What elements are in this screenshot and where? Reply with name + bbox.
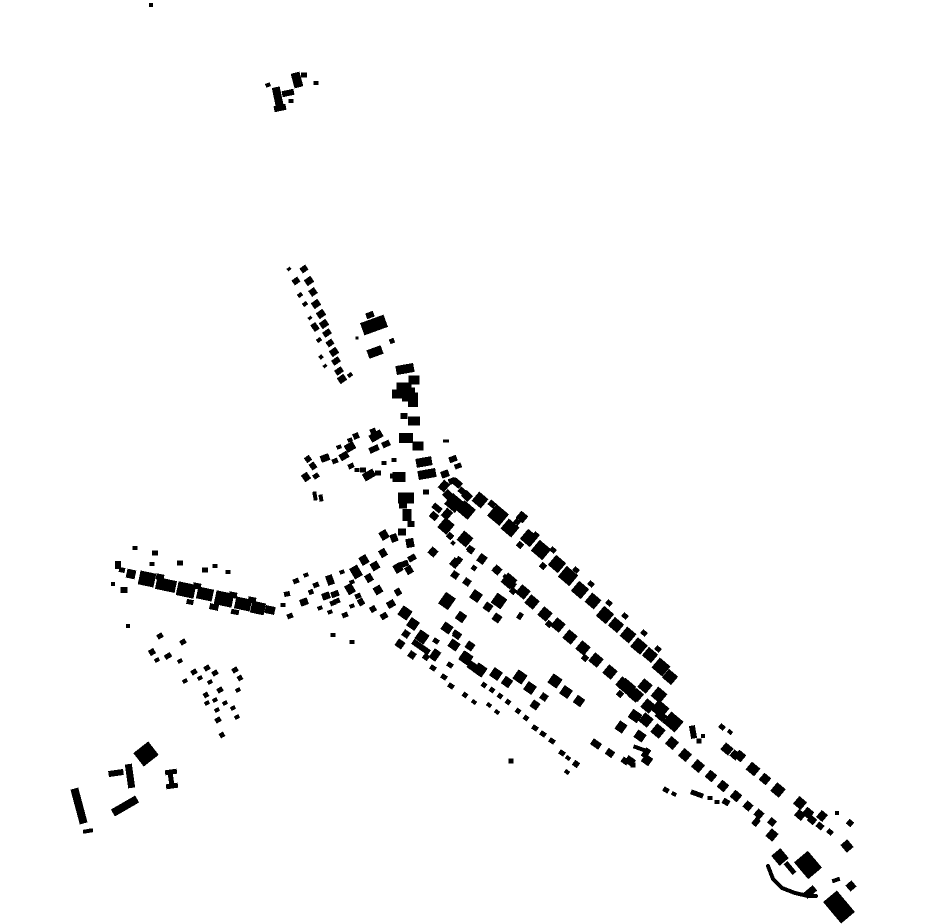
building-footprint	[264, 605, 275, 615]
building-footprint	[678, 748, 692, 762]
building-footprint	[718, 723, 726, 731]
building-footprint	[320, 453, 331, 463]
building-footprint	[621, 612, 629, 620]
building-footprint	[691, 759, 705, 773]
building-footprint	[164, 652, 173, 660]
building-footprint	[450, 540, 456, 546]
building-footprint	[297, 292, 303, 298]
building-footprint	[650, 723, 665, 738]
building-footprint	[547, 673, 562, 688]
building-footprint	[386, 599, 396, 609]
building-footprint	[327, 609, 333, 614]
building-footprint	[614, 720, 627, 733]
building-footprint	[515, 708, 522, 715]
building-footprint	[516, 541, 524, 549]
building-footprint	[721, 798, 730, 807]
building-footprint	[302, 301, 308, 307]
building-footprint	[321, 591, 331, 600]
building-footprint	[156, 632, 164, 639]
building-footprint	[322, 328, 332, 338]
building-footprint	[531, 540, 551, 560]
building-footprint	[349, 603, 355, 608]
building-footprint	[149, 3, 153, 7]
building-footprint	[111, 582, 115, 586]
building-footprint	[491, 612, 502, 623]
building-footprint	[312, 582, 319, 589]
building-footprint	[486, 702, 492, 708]
building-footprint	[230, 705, 236, 711]
building-footprint	[212, 697, 218, 703]
building-footprint	[489, 687, 496, 694]
building-footprint	[462, 692, 469, 699]
building-footprint	[690, 789, 704, 798]
building-footprint	[336, 444, 342, 449]
building-footprint	[671, 791, 677, 797]
building-footprint	[349, 565, 363, 580]
building-footprint	[549, 546, 557, 554]
building-footprint	[308, 287, 318, 297]
cluster-southeast-tail	[771, 839, 856, 923]
building-footprint	[793, 796, 807, 810]
building-footprint	[665, 736, 679, 750]
building-footprint	[177, 561, 183, 566]
building-footprint	[548, 737, 556, 745]
building-footprint	[588, 652, 603, 667]
building-footprint	[717, 780, 730, 793]
building-footprint	[138, 570, 157, 587]
building-footprint	[126, 569, 137, 580]
building-footprint	[368, 444, 380, 454]
building-footprint	[301, 472, 311, 483]
building-footprint	[392, 390, 408, 399]
building-footprint	[176, 581, 197, 598]
building-footprint	[472, 492, 489, 509]
building-footprint	[505, 699, 512, 706]
building-footprint	[432, 637, 440, 645]
building-footprint	[448, 455, 458, 463]
building-footprint	[211, 669, 219, 676]
building-footprint	[235, 687, 241, 693]
building-footprint	[429, 664, 437, 672]
building-footprint	[378, 548, 388, 558]
building-footprint	[585, 593, 602, 610]
building-footprint	[319, 319, 330, 329]
building-footprint	[404, 512, 411, 518]
building-footprint	[539, 562, 547, 570]
building-footprint	[417, 468, 436, 480]
building-footprint	[516, 612, 524, 621]
building-footprint	[390, 474, 396, 479]
building-footprint	[231, 666, 239, 673]
building-footprint	[572, 760, 580, 768]
building-footprint	[398, 529, 406, 536]
building-footprint	[265, 82, 271, 87]
building-footprint	[413, 442, 424, 451]
building-footprint	[186, 599, 194, 605]
building-map	[0, 0, 930, 924]
building-footprint	[234, 714, 240, 720]
building-footprint	[437, 517, 455, 535]
building-footprint	[701, 734, 705, 738]
building-footprint	[203, 664, 211, 671]
building-footprint	[166, 783, 179, 790]
building-footprint	[784, 861, 797, 875]
building-footprint	[366, 345, 383, 359]
building-footprint	[154, 657, 160, 663]
building-footprint	[539, 692, 549, 702]
building-footprint	[450, 570, 460, 580]
building-footprint	[443, 440, 449, 443]
building-footprint	[318, 494, 323, 502]
building-footprint	[308, 589, 314, 595]
building-footprint	[440, 621, 453, 634]
building-footprint	[133, 546, 138, 550]
building-footprint	[204, 700, 210, 706]
building-footprint	[316, 309, 327, 319]
building-footprint	[497, 693, 504, 700]
building-footprint	[823, 890, 855, 923]
building-footprint	[309, 461, 318, 470]
building-footprint	[304, 455, 312, 463]
building-footprint	[325, 574, 335, 586]
building-footprint	[476, 553, 488, 565]
building-footprint	[708, 796, 713, 800]
building-footprint	[705, 770, 718, 783]
building-footprint	[753, 808, 764, 819]
building-footprint	[452, 630, 463, 640]
building-footprint	[108, 769, 124, 777]
building-footprint	[427, 546, 438, 557]
cluster-farmstead	[70, 741, 178, 833]
building-footprint	[347, 372, 353, 378]
building-footprint	[356, 337, 359, 340]
building-footprint	[746, 762, 761, 777]
building-footprint	[832, 877, 841, 883]
building-footprint	[281, 603, 286, 607]
building-footprint	[312, 472, 320, 480]
building-footprint	[179, 638, 187, 645]
building-footprint	[581, 654, 589, 662]
building-footprint	[509, 759, 514, 764]
building-footprint	[382, 461, 387, 465]
building-footprint	[608, 617, 624, 633]
building-footprint	[524, 594, 539, 609]
building-footprint	[214, 707, 220, 713]
building-footprint	[401, 629, 411, 639]
building-footprint	[405, 538, 414, 548]
building-footprint	[299, 265, 308, 274]
building-footprint	[590, 738, 602, 749]
building-footprint	[214, 716, 222, 723]
building-footprint	[370, 561, 381, 572]
building-footprint	[408, 399, 418, 407]
building-footprint	[494, 709, 500, 715]
building-footprint	[559, 685, 573, 699]
building-footprint	[826, 828, 834, 836]
building-footprint	[408, 521, 415, 527]
building-footprint	[369, 605, 377, 613]
building-footprint	[292, 578, 299, 585]
building-footprint	[558, 749, 566, 757]
building-footprint	[308, 316, 313, 321]
building-footprint	[633, 729, 646, 742]
building-footprint	[197, 675, 203, 681]
building-footprint	[816, 810, 828, 822]
building-footprint	[301, 73, 307, 78]
building-footprint	[455, 611, 468, 624]
building-footprint	[840, 839, 853, 852]
building-footprint	[815, 821, 824, 830]
building-footprint	[447, 682, 455, 690]
building-footprint	[375, 471, 381, 476]
building-footprint	[447, 638, 460, 651]
cluster-main-street-lower-row	[437, 517, 778, 842]
building-footprint	[365, 311, 375, 319]
building-footprint	[358, 554, 369, 566]
building-footprint	[355, 468, 360, 472]
building-footprint	[125, 764, 135, 789]
building-footprint	[121, 587, 128, 593]
cluster-main-street-upper-row	[427, 477, 854, 836]
building-footprint	[539, 730, 547, 738]
cluster-center-column	[389, 388, 436, 569]
building-footprint	[605, 599, 613, 607]
building-footprint	[304, 276, 315, 286]
building-footprint	[282, 89, 295, 97]
building-footprint	[565, 755, 571, 761]
building-footprint	[438, 592, 456, 610]
building-footprint	[794, 851, 822, 879]
building-footprint	[765, 828, 778, 841]
building-footprint	[454, 462, 462, 469]
building-footprint	[631, 763, 636, 768]
building-footprint	[312, 491, 318, 501]
building-footprint	[325, 339, 334, 348]
building-footprint	[331, 633, 336, 637]
building-footprint	[689, 725, 697, 739]
building-footprint	[299, 597, 309, 606]
building-footprint	[331, 458, 338, 465]
building-footprint	[216, 686, 224, 693]
building-footprint	[373, 585, 384, 596]
building-footprint	[571, 581, 589, 599]
building-footprint	[471, 565, 478, 572]
building-footprint	[331, 356, 341, 366]
building-footprint	[318, 354, 324, 360]
building-footprint	[564, 769, 570, 775]
building-footprint	[379, 612, 388, 621]
building-footprint	[381, 440, 391, 449]
building-footprint	[620, 627, 637, 644]
building-footprint	[846, 819, 854, 827]
building-footprint	[408, 417, 420, 426]
building-footprint	[203, 692, 210, 699]
building-footprint	[395, 363, 414, 375]
building-footprint	[491, 593, 508, 610]
building-footprint	[550, 617, 565, 632]
building-footprint	[364, 573, 374, 583]
building-footprint	[633, 744, 649, 753]
building-footprint	[339, 569, 345, 574]
building-footprint	[222, 700, 228, 706]
building-footprint	[399, 433, 413, 443]
building-footprint	[537, 606, 552, 621]
building-footprint	[407, 553, 417, 562]
building-footprint	[727, 729, 733, 735]
building-footprint	[462, 577, 472, 587]
building-footprint	[529, 699, 540, 710]
building-footprint	[360, 315, 388, 336]
building-footprint	[389, 338, 395, 344]
building-footprint	[152, 551, 158, 556]
building-footprint	[126, 624, 130, 628]
cluster-northwest-road	[287, 265, 354, 385]
building-footprint	[575, 640, 590, 655]
building-footprint	[587, 580, 595, 588]
cluster-center-west	[301, 428, 473, 502]
building-footprint	[344, 583, 356, 596]
building-footprint	[715, 800, 720, 804]
map-canvas	[0, 0, 930, 924]
building-footprint	[70, 788, 87, 825]
building-footprint	[767, 817, 777, 827]
building-footprint	[111, 796, 139, 817]
building-footprint	[654, 645, 662, 653]
building-footprint	[605, 748, 616, 758]
building-footprint	[341, 612, 348, 619]
building-footprint	[523, 681, 537, 695]
building-footprint	[378, 529, 389, 541]
building-footprint	[392, 458, 397, 462]
building-footprint	[845, 880, 856, 891]
building-footprint	[284, 591, 291, 597]
building-footprint	[213, 564, 218, 568]
building-footprint	[352, 432, 360, 440]
building-footprint	[133, 741, 158, 766]
building-footprint	[697, 739, 702, 744]
building-footprint	[287, 267, 292, 272]
building-footprint	[394, 587, 403, 596]
building-footprint	[330, 590, 340, 598]
building-footprint	[389, 533, 398, 543]
cluster-west-dots	[111, 546, 362, 628]
cluster-southwest-rows	[148, 632, 244, 738]
building-footprint	[202, 568, 208, 573]
building-footprint	[316, 337, 322, 343]
building-footprint	[602, 664, 617, 679]
building-footprint	[523, 715, 530, 722]
building-footprint	[457, 531, 474, 548]
building-footprint	[512, 669, 527, 684]
building-footprint	[148, 648, 156, 656]
building-footprint	[182, 678, 188, 684]
building-footprint	[501, 676, 514, 689]
building-footprint	[742, 800, 753, 811]
building-footprint	[334, 366, 344, 376]
building-footprint	[226, 570, 231, 574]
building-footprint	[770, 782, 785, 797]
building-footprint	[759, 773, 772, 786]
building-footprint	[446, 661, 454, 669]
building-footprint	[464, 640, 475, 651]
building-footprint	[115, 561, 121, 569]
building-footprint	[155, 573, 164, 581]
building-footprint	[423, 490, 429, 495]
building-footprint	[406, 617, 420, 631]
building-footprint	[440, 673, 448, 681]
building-footprint	[190, 668, 198, 675]
building-footprint	[317, 605, 323, 610]
cluster-north-hamlet	[149, 3, 319, 112]
building-footprint	[231, 609, 240, 616]
building-footprint	[314, 81, 319, 85]
building-footprint	[401, 413, 408, 419]
building-footprint	[399, 502, 407, 509]
building-footprint	[440, 469, 450, 478]
building-footprint	[286, 613, 293, 620]
building-footprint	[168, 774, 174, 785]
building-footprint	[573, 695, 586, 708]
building-footprint	[481, 682, 488, 689]
building-footprint	[835, 811, 839, 815]
building-footprint	[662, 786, 670, 793]
building-footprint	[289, 99, 294, 103]
building-footprint	[207, 679, 213, 685]
building-footprint	[311, 299, 322, 309]
building-footprint	[329, 347, 340, 357]
building-footprint	[407, 650, 417, 660]
building-footprint	[83, 828, 94, 834]
building-footprint	[471, 699, 477, 705]
building-footprint	[350, 640, 355, 644]
building-footprint	[323, 364, 328, 369]
building-footprint	[303, 572, 309, 577]
building-footprint	[531, 724, 539, 732]
building-footprint	[469, 589, 483, 603]
building-footprint	[360, 468, 366, 473]
building-footprint	[640, 629, 648, 637]
building-footprint	[730, 790, 743, 803]
building-footprint	[177, 658, 183, 664]
building-footprint	[397, 605, 412, 620]
building-footprint	[347, 462, 355, 469]
building-footprint	[310, 322, 320, 332]
building-footprint	[415, 456, 432, 468]
building-footprint	[291, 277, 300, 286]
building-footprint	[489, 667, 503, 681]
building-footprint	[562, 629, 577, 644]
building-footprint	[337, 374, 348, 384]
building-footprint	[407, 388, 415, 395]
building-footprint	[467, 545, 476, 554]
building-footprint	[237, 675, 244, 682]
building-footprint	[357, 597, 366, 606]
building-footprint	[394, 638, 405, 649]
building-footprint	[150, 562, 155, 566]
building-footprint	[219, 732, 226, 739]
cluster-west-terrace-band	[119, 567, 276, 615]
